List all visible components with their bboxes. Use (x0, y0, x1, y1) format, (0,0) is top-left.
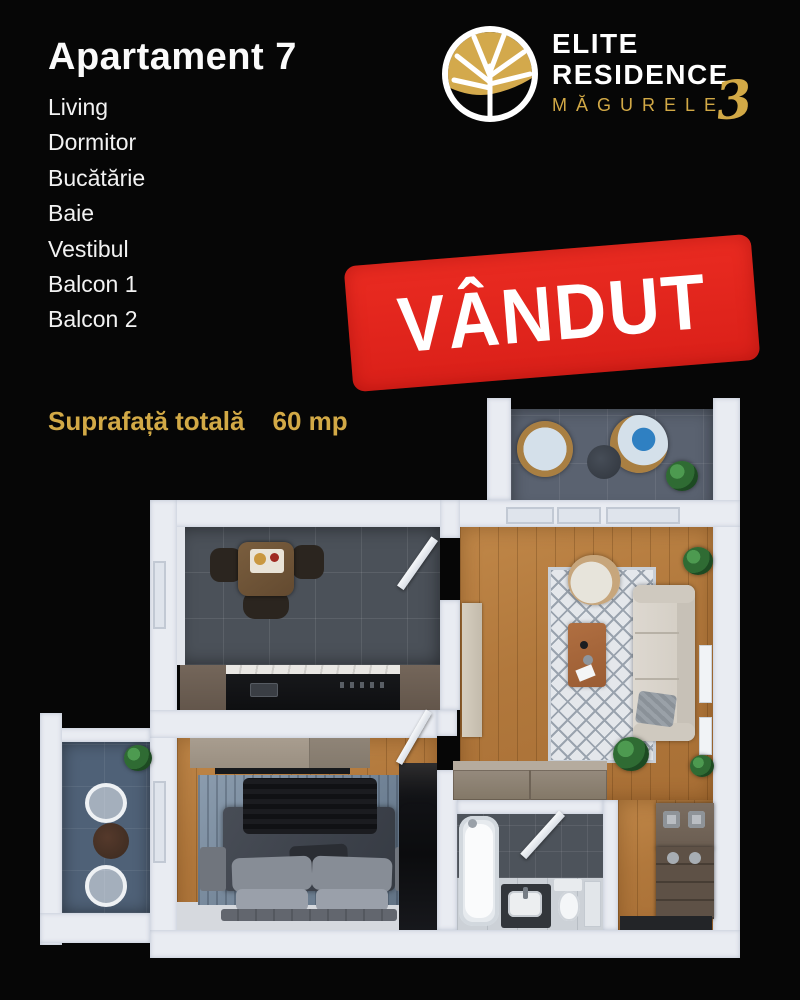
bathroom-faucet (523, 887, 528, 899)
flyer-page: { "header": { "title": "Apartament 7", "… (0, 0, 800, 1000)
room-list-item-dormitor: Dormitor (48, 125, 145, 160)
nightstand-left (200, 847, 226, 891)
sofa-blanket (635, 691, 677, 728)
kitchen-living-wall-upper (440, 500, 460, 538)
room-list-item-balcon1: Balcon 1 (48, 267, 145, 302)
living-radiator (699, 645, 712, 703)
kitchen-inner-wall-strip (177, 527, 185, 665)
balcony2-chair-top (85, 783, 127, 823)
hall-shelf-gadget-left (663, 811, 680, 828)
balcony1-plant (666, 461, 698, 491)
hall-chest-knob-right (689, 852, 701, 864)
kitchen-window (153, 561, 166, 629)
bedroom-black-wardrobe (399, 763, 437, 930)
hall-shelf-gadget-right (688, 811, 705, 828)
hall-chest-drawers (656, 847, 714, 919)
page-title: Apartament 7 (48, 36, 297, 79)
bed-pillow-right-1 (311, 856, 392, 893)
living-balcony-door (606, 507, 680, 524)
kitchen-sink (250, 683, 278, 697)
bedroom-tv-bar (215, 768, 350, 774)
sofa-cushion-line-1 (635, 632, 679, 634)
logo-text: ELITE RESIDENCE MĂGURELE (552, 28, 729, 118)
apartment-right-wall (713, 398, 740, 958)
bed-throw-blanket (243, 778, 377, 834)
tv-dresser-seam (529, 770, 531, 800)
sofa-armrest-top (633, 585, 695, 603)
tv-dresser-top (453, 761, 607, 770)
balcony1-left-wall (487, 398, 511, 500)
balcony2-table (93, 823, 129, 859)
balcony1-egg-chair-left (517, 421, 573, 477)
kitchen-cabinet-left (180, 665, 226, 710)
kitchen-chair-right (292, 545, 324, 579)
logo-line3: MĂGURELE (552, 92, 729, 118)
living-wall-panel (699, 717, 712, 755)
balcony2-bottom-wall (40, 913, 150, 943)
entrance-doormat (620, 916, 712, 930)
balcony2-left-wall (40, 713, 62, 945)
bedroom-hall-wall-upper (437, 710, 457, 736)
bathroom-right-wall (603, 800, 618, 930)
living-plant-bottom (613, 737, 649, 771)
logo: ELITE RESIDENCE MĂGURELE 3 (438, 22, 768, 137)
bedroom-wardrobe-right (310, 738, 370, 768)
kitchen-tray-croissant (254, 553, 266, 565)
kitchen-cabinet-right (400, 665, 440, 710)
living-armchair (568, 555, 620, 605)
hall-chest-knob-left (667, 852, 679, 864)
living-console (462, 603, 482, 737)
bed-pillow-right-2 (316, 889, 388, 911)
sold-stamp-text: VÂNDUT (394, 255, 710, 371)
living-plant-right (690, 755, 714, 777)
balcony2-top-wall (48, 728, 150, 742)
balcony2-plant (124, 745, 152, 771)
kitchen-living-wall-lower (440, 600, 460, 710)
living-plant-corner (683, 547, 713, 575)
living-window-2 (557, 507, 601, 524)
logo-line2: RESIDENCE (552, 59, 729, 90)
logo-tree-icon (440, 24, 540, 124)
room-list-item-bucatarie: Bucătărie (48, 161, 145, 196)
room-list-item-vestibul: Vestibul (48, 232, 145, 267)
toilet-bowl (558, 891, 580, 921)
bathroom-cabinet (584, 881, 601, 927)
sofa-cushion-line-2 (635, 678, 679, 680)
balcony2-chair-bottom (85, 865, 127, 907)
bathtub-inner (465, 824, 493, 918)
bathroom-top-wall (457, 800, 603, 814)
coffee-table-phone (580, 641, 588, 649)
logo-number: 3 (713, 68, 755, 132)
living-window-1 (506, 507, 554, 524)
logo-line1: ELITE (552, 28, 729, 59)
kitchen-backsplash-marble (226, 665, 400, 674)
bedroom-wardrobe-left (190, 738, 310, 768)
balcony1-table (587, 445, 621, 479)
coffee-table-bowl (583, 655, 593, 665)
bedroom-balcony-door (153, 781, 166, 863)
room-list-item-living: Living (48, 90, 145, 125)
bed-headboard (221, 909, 397, 921)
kitchen-tray-bowl (270, 553, 279, 562)
toilet-tank (554, 879, 582, 891)
bed-pillow-left-1 (231, 856, 312, 893)
kitchen-bedroom-wall (150, 710, 437, 738)
room-list: Living Dormitor Bucătărie Baie Vestibul … (48, 90, 145, 338)
room-list-item-baie: Baie (48, 196, 145, 231)
bed-pillow-left-2 (236, 889, 308, 911)
sold-stamp: VÂNDUT (344, 234, 761, 392)
sofa-backrest (677, 585, 695, 741)
floor-plan (40, 395, 760, 975)
shower-head (468, 819, 477, 828)
kitchen-cooktop-knobs (340, 682, 384, 688)
apartment-bottom-wall (150, 930, 740, 958)
room-list-item-balcon2: Balcon 2 (48, 302, 145, 337)
